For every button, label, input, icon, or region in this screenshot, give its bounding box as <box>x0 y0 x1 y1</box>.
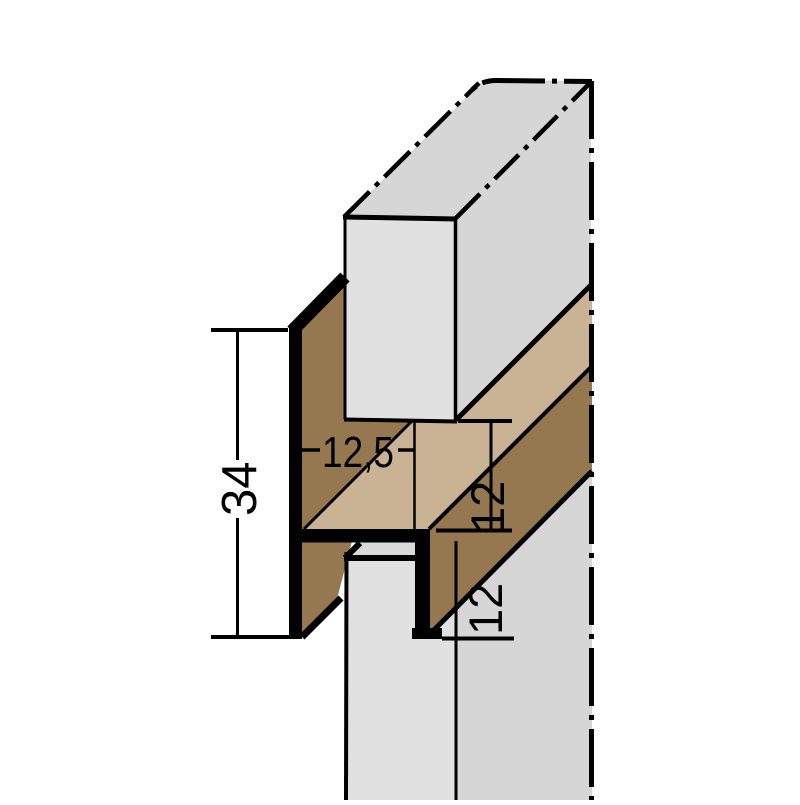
svg-text:12,5: 12,5 <box>322 428 394 477</box>
svg-text:34: 34 <box>213 461 267 516</box>
svg-text:12: 12 <box>461 481 514 533</box>
svg-text:12: 12 <box>459 583 512 635</box>
